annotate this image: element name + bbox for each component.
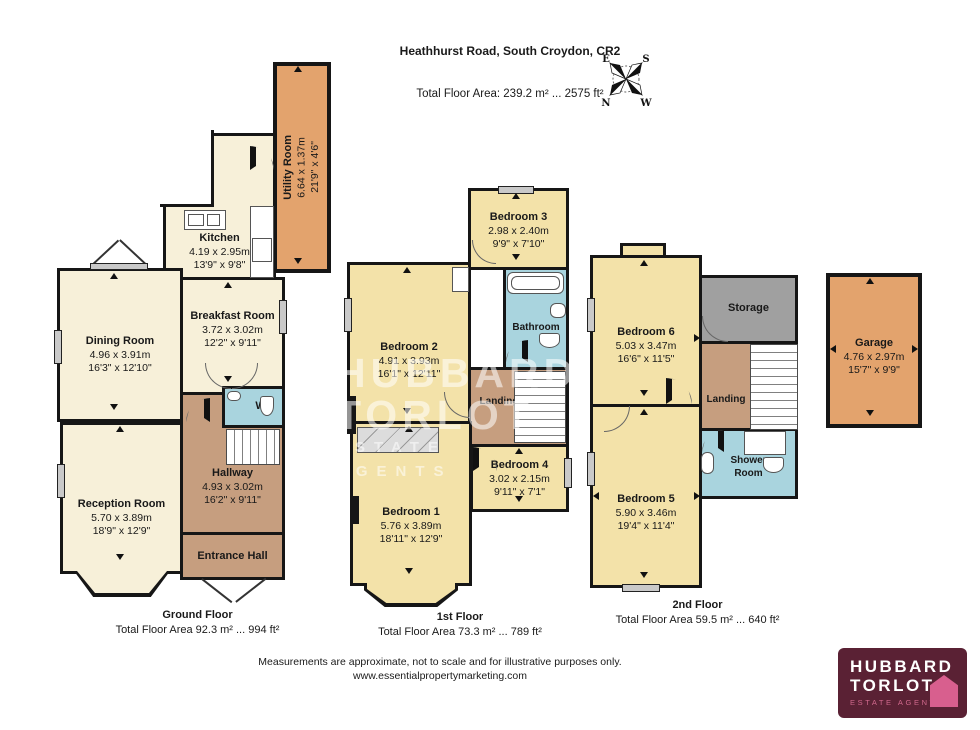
room-name: Bedroom 5: [593, 493, 699, 507]
room-dining: Dining Room 4.96 x 3.91m 16'3" x 12'10": [57, 268, 183, 422]
dimension-marker: [116, 426, 124, 432]
room-dim-metric: 4.93 x 3.02m: [183, 481, 282, 494]
window: [622, 584, 660, 592]
bathroom-basin: [550, 303, 566, 318]
dimension-marker: [640, 572, 648, 578]
window: [564, 458, 572, 488]
room-dim-metric: 5.76 x 3.89m: [353, 520, 469, 533]
door-leaf: [119, 240, 146, 266]
dimension-marker: [593, 492, 599, 500]
dimension-marker: [640, 390, 648, 396]
entrance-door-leaf: [202, 578, 233, 603]
room-dim-metric: 4.96 x 3.91m: [60, 349, 180, 362]
dimension-marker: [512, 254, 520, 260]
dimension-marker: [515, 496, 523, 502]
disclaimer: Measurements are approximate, not to sca…: [160, 655, 720, 683]
sink-bowl: [207, 214, 220, 226]
page-title: Heathhurst Road, South Croydon, CR2: [260, 44, 760, 58]
room-name: Bedroom 6: [593, 326, 699, 340]
floorplan-canvas: Heathhurst Road, South Croydon, CR2 Tota…: [0, 0, 980, 730]
sink-bowl: [188, 214, 204, 226]
room-name: Hallway: [183, 467, 282, 481]
door-leaf: [91, 240, 118, 266]
room-name: Garage: [830, 337, 918, 351]
room-reception: Reception Room 5.70 x 3.89m 18'9" x 12'9…: [60, 422, 183, 574]
staircase: [226, 429, 280, 465]
floor-name: 2nd Floor: [570, 598, 825, 613]
room-dim-metric: 5.90 x 3.46m: [593, 507, 699, 520]
bathroom-toilet: [539, 333, 560, 348]
ground-floor-caption: Ground Floor Total Floor Area 92.3 m² ..…: [55, 608, 340, 638]
compass-n: N: [601, 98, 610, 108]
room-name: Reception Room: [63, 498, 180, 512]
first-floor-caption: 1st Floor Total Floor Area 73.3 m² ... 7…: [335, 610, 585, 640]
room-name: Landing: [702, 394, 750, 407]
room-name: Dining Room: [60, 335, 180, 349]
dimension-marker: [866, 410, 874, 416]
floor-area: Total Floor Area 73.3 m² ... 789 ft²: [378, 626, 542, 638]
room-landing-2nd: Landing: [699, 341, 753, 433]
shower-basin: [701, 452, 714, 474]
room-dim-imperial: 16'6" x 11'5": [593, 353, 699, 366]
dimension-marker: [640, 409, 648, 415]
dimension-marker: [512, 193, 520, 199]
dimension-marker: [694, 334, 700, 342]
compass-e: E: [602, 54, 610, 65]
floor-area: Total Floor Area 59.5 m² ... 640 ft²: [616, 614, 780, 626]
dimension-marker: [403, 267, 411, 273]
floor-name: Ground Floor: [55, 608, 340, 623]
dimension-marker: [294, 258, 302, 264]
room-dim-imperial: 21'9" x 4'6": [309, 135, 323, 200]
wardrobe: [357, 427, 439, 453]
window: [279, 300, 287, 334]
dimension-marker: [110, 404, 118, 410]
chimney-breast: [347, 396, 356, 434]
room-name: Bedroom 2: [350, 341, 468, 355]
dimension-marker: [405, 568, 413, 574]
room-name: Storage: [702, 302, 795, 316]
room-name: Bedroom 1: [353, 506, 469, 520]
room-dim-imperial: 16'1" x 12'11": [350, 368, 468, 381]
shower-toilet: [763, 457, 784, 473]
window: [587, 298, 595, 332]
exterior-notch: [160, 130, 214, 207]
room-name: Utility Room: [281, 135, 295, 200]
room-dim-metric: 6.64 x 1.37m: [296, 135, 310, 200]
dimension-marker: [116, 554, 124, 560]
shower-tray: [744, 431, 786, 455]
wc-basin: [227, 391, 241, 401]
dimension-marker: [224, 376, 232, 382]
room-dim-imperial: 15'7" x 9'9": [830, 364, 918, 377]
logo-text: HUBBARD: [850, 657, 967, 676]
compass-rose-icon: E S N W: [594, 50, 658, 108]
agency-logo: HUBBARD TORLOT ESTATE AGENTS: [838, 648, 967, 718]
marketing-url: www.essentialpropertymarketing.com: [353, 670, 527, 682]
room-dim-metric: 4.91 x 3.93m: [350, 355, 468, 368]
compass-w: W: [639, 98, 652, 108]
room-dim-imperial: 16'3" x 12'10": [60, 362, 180, 375]
dimension-marker: [515, 448, 523, 454]
entrance-door-leaf: [236, 578, 267, 603]
dimension-marker: [110, 273, 118, 279]
room-garage: Garage 4.76 x 2.97m 15'7" x 9'9": [826, 273, 922, 428]
second-floor-caption: 2nd Floor Total Floor Area 59.5 m² ... 6…: [570, 598, 825, 628]
room-entrance-hall: Entrance Hall: [180, 532, 285, 580]
room-name: Entrance Hall: [183, 550, 282, 564]
window: [587, 452, 595, 486]
window: [57, 464, 65, 498]
room-name: Breakfast Room: [183, 310, 282, 324]
hob-icon: [252, 238, 272, 262]
dimension-marker: [694, 492, 700, 500]
room-dim-metric: 3.02 x 2.15m: [473, 473, 566, 486]
compass-s: S: [642, 54, 649, 65]
room-bedroom6: Bedroom 6 5.03 x 3.47m 16'6" x 11'5": [590, 255, 702, 407]
dimension-marker: [403, 408, 411, 414]
wc-toilet: [260, 396, 274, 416]
room-dim-imperial: 18'11" x 12'9": [353, 533, 469, 546]
staircase: [514, 371, 566, 443]
dimension-marker: [866, 278, 874, 284]
dimension-marker: [830, 345, 836, 353]
dimension-marker: [294, 66, 302, 72]
room-dim-imperial: 19'4" x 11'4": [593, 520, 699, 533]
disclaimer-line: Measurements are approximate, not to sca…: [258, 656, 621, 668]
staircase: [750, 344, 798, 430]
bathtub-inner: [511, 276, 560, 290]
room-dim-metric: 4.76 x 2.97m: [830, 351, 918, 364]
dimension-marker: [224, 282, 232, 288]
room-dim-metric: 2.98 x 2.40m: [471, 225, 566, 238]
dimension-marker: [405, 426, 413, 432]
total-floor-area: Total Floor Area: 239.2 m² ... 2575 ft²: [260, 88, 760, 100]
floor-name: 1st Floor: [335, 610, 585, 625]
dimension-marker: [912, 345, 918, 353]
floor-area: Total Floor Area 92.3 m² ... 994 ft²: [116, 624, 280, 636]
room-dim-metric: 5.70 x 3.89m: [63, 512, 180, 525]
room-dim-imperial: 12'2" x 9'11": [183, 337, 282, 350]
bedroom-basin: [452, 267, 469, 292]
room-name: Bedroom 3: [471, 211, 566, 225]
french-door-sill: [90, 263, 148, 270]
room-dim-imperial: 18'9" x 12'9": [63, 525, 180, 538]
room-dim-metric: 5.03 x 3.47m: [593, 340, 699, 353]
chimney-breast: [350, 496, 359, 524]
window: [344, 298, 352, 332]
window: [54, 330, 62, 364]
room-dim-imperial: 16'2" x 9'11": [183, 494, 282, 507]
dimension-marker: [640, 260, 648, 266]
room-dim-metric: 3.72 x 3.02m: [183, 324, 282, 337]
